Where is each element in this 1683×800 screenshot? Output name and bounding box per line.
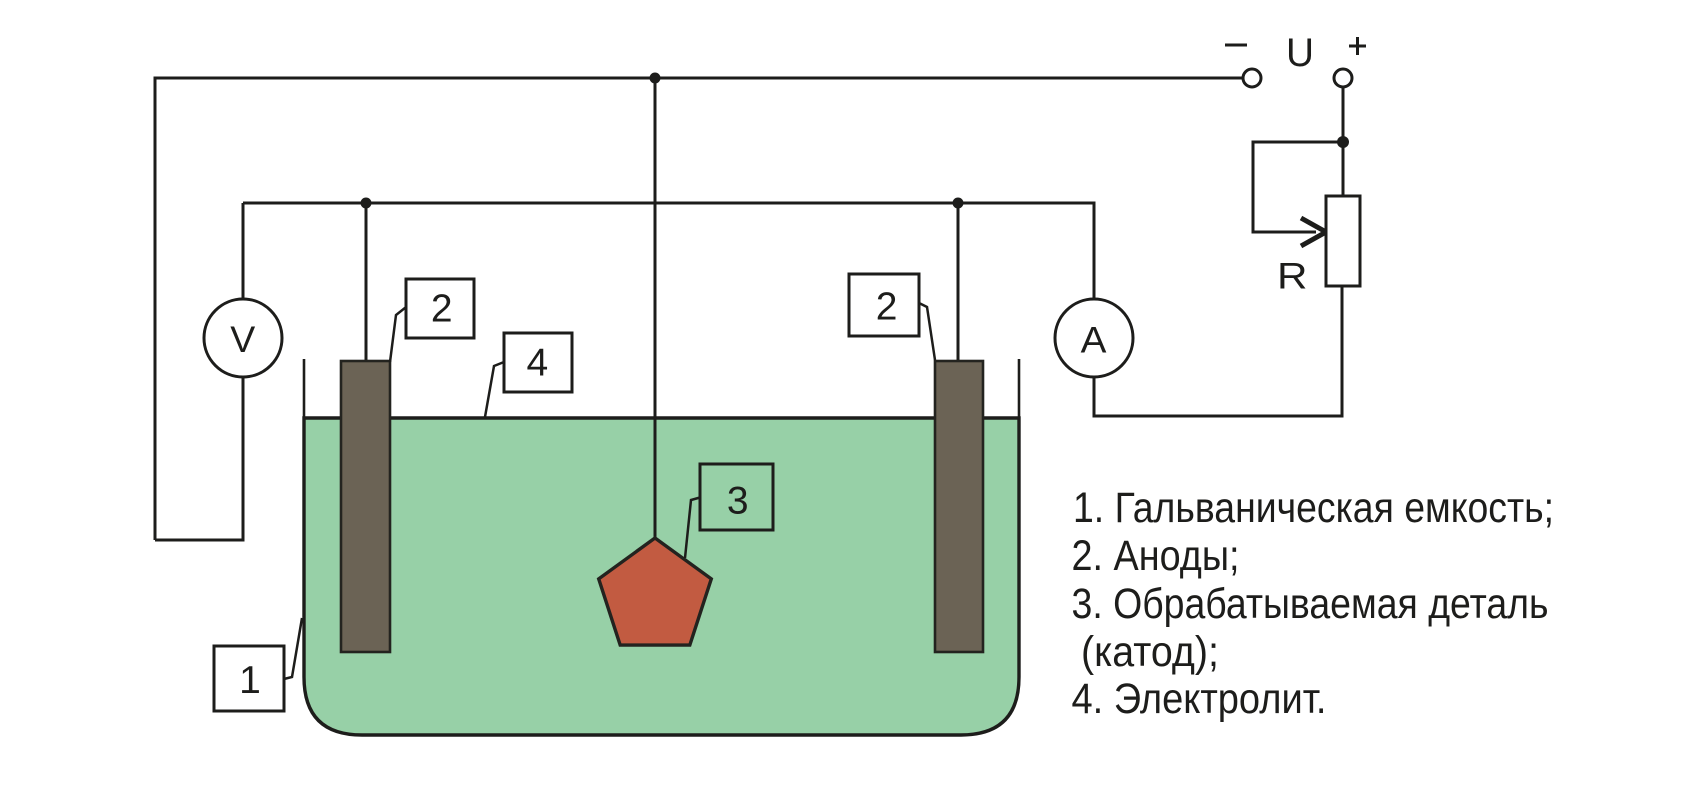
svg-text:R: R: [1277, 255, 1308, 297]
svg-text:3: 3: [727, 480, 749, 523]
svg-text:4: 4: [526, 342, 548, 385]
svg-text:1. Гальваническая емкость;: 1. Гальваническая емкость;: [1073, 485, 1554, 532]
svg-text:(катод);: (катод);: [1081, 629, 1219, 676]
svg-text:1: 1: [239, 659, 261, 702]
svg-text:2: 2: [876, 286, 898, 329]
svg-text:3. Обрабатываемая деталь: 3. Обрабатываемая деталь: [1072, 581, 1549, 628]
svg-text:U: U: [1286, 31, 1314, 75]
svg-text:2: 2: [431, 288, 453, 331]
svg-text:V: V: [230, 319, 255, 360]
svg-text:4. Электролит.: 4. Электролит.: [1072, 676, 1327, 723]
svg-text:A: A: [1081, 320, 1107, 361]
svg-text:2. Аноды;: 2. Аноды;: [1072, 533, 1240, 580]
